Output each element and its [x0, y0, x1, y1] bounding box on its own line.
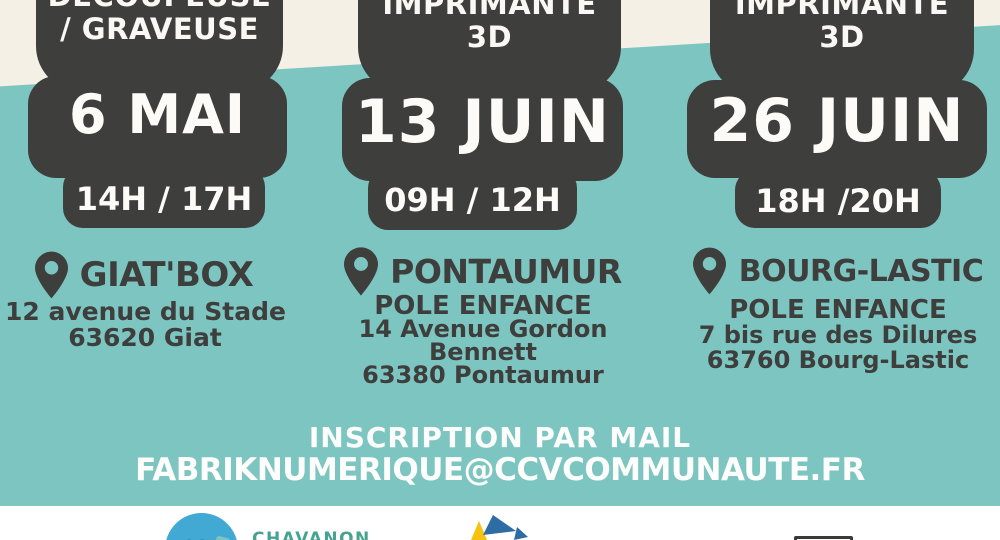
map-pin-icon [693, 247, 726, 295]
location-row: GIAT'BOX [14, 250, 274, 300]
time-text: 14H / 17H [63, 183, 265, 215]
address-block: 12 avenue du Stade 63620 Giat [5, 299, 285, 351]
place-name: BOURG-LASTIC [739, 254, 984, 289]
time-text: 09H / 12H [368, 184, 577, 216]
address-line: 63620 Giat [5, 325, 285, 351]
machine-title-line2: 3D [358, 21, 621, 54]
chavanon-circle-mark-icon [213, 535, 230, 540]
machine-title: DÉCOUPEUSE / GRAVEUSE [36, 0, 283, 46]
machine-title-line1: IMPRIMANTE [710, 0, 974, 21]
machine-title: IMPRIMANTE 3D [710, 0, 974, 54]
date-text: 26 JUIN [687, 91, 987, 151]
address-block: 14 Avenue Gordon Bennett 63380 Pontaumur [333, 318, 633, 387]
location-row: PONTAUMUR [328, 245, 638, 297]
machine-title-line2: / GRAVEUSE [36, 13, 283, 46]
address-block: 7 bis rue des Dilures 63760 Bourg-Lastic [678, 323, 998, 373]
partner-mountain-logo-icon [460, 514, 530, 540]
time-text: 18H /20H [735, 185, 941, 217]
address-line: 12 avenue du Stade [5, 299, 285, 325]
date-text: 13 JUIN [342, 92, 623, 152]
address-line: 63760 Bourg-Lastic [678, 348, 998, 373]
place-name: PONTAUMUR [390, 252, 622, 291]
flyer-canvas: DÉCOUPEUSE / GRAVEUSE 6 MAI 14H / 17H GI… [0, 0, 1000, 540]
machine-title-line2: 3D [710, 21, 974, 54]
date-text: 6 MAI [28, 88, 287, 142]
chavanon-logo-text: CHAVANON [252, 529, 371, 540]
address-line: 63380 Pontaumur [333, 364, 633, 387]
machine-title-line1: IMPRIMANTE [358, 0, 621, 21]
partner-frame-logo-icon [794, 536, 853, 540]
registration-email: FABRIKNUMERIQUE@CCVCOMMUNAUTE.FR [0, 452, 1000, 488]
registration-heading: INSCRIPTION PAR MAIL [0, 421, 1000, 454]
machine-title: IMPRIMANTE 3D [358, 0, 621, 54]
address-line: 7 bis rue des Dilures [678, 323, 998, 348]
map-pin-icon [344, 247, 378, 296]
location-row: BOURG-LASTIC [676, 246, 1000, 296]
place-name: GIAT'BOX [80, 255, 254, 295]
map-pin-icon [35, 251, 68, 299]
chavanon-circle-text: cc [181, 533, 207, 540]
